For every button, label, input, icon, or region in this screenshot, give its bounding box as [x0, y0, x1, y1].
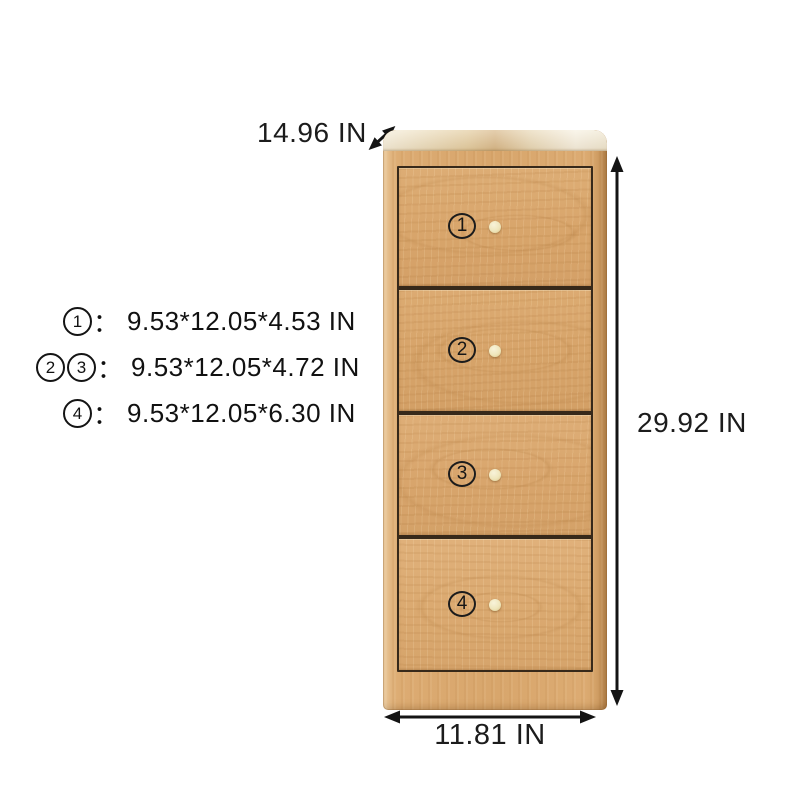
spec-line-drawer-1: 1 ： 9.53*12.05*4.53 IN — [36, 298, 360, 344]
drawer-2-knob — [489, 345, 501, 357]
spec-dimensions-text: 9.53*12.05*6.30 IN — [127, 398, 356, 429]
spec-colon: ： — [97, 349, 123, 386]
drawer-3-knob — [489, 469, 501, 481]
circled-number-2: 2 — [36, 353, 65, 382]
drawer-3-number-badge: 3 — [448, 461, 476, 487]
cabinet-top-surface — [383, 130, 607, 151]
drawer-1: 1 — [399, 168, 591, 286]
circled-number-4: 4 — [63, 399, 92, 428]
spec-colon: ： — [93, 303, 119, 340]
width-dimension-label: 11.81 IN — [383, 719, 597, 752]
drawer-4-knob — [489, 599, 501, 611]
circled-number-3: 3 — [67, 353, 96, 382]
spec-dimensions-text: 9.53*12.05*4.72 IN — [131, 352, 360, 383]
spec-line-drawer-4: 4 ： 9.53*12.05*6.30 IN — [36, 390, 360, 436]
spec-line-drawers-2-3: 2 3 ： 9.53*12.05*4.72 IN — [36, 344, 360, 390]
drawer-1-knob — [489, 221, 501, 233]
drawer-4: 4 — [399, 539, 591, 670]
drawer-4-number-badge: 4 — [448, 591, 476, 617]
drawer-3: 3 — [399, 415, 591, 535]
drawer-stack: 1 2 3 4 — [397, 166, 593, 672]
spec-badges: 2 3 — [36, 353, 96, 382]
height-dimension-label: 29.92 IN — [637, 407, 747, 439]
spec-dimensions-text: 9.53*12.05*4.53 IN — [127, 306, 356, 337]
spec-colon: ： — [93, 395, 119, 432]
spec-badges: 1 — [36, 307, 92, 336]
product-dimension-diagram: 1 ： 9.53*12.05*4.53 IN 2 3 ： 9.53*12.05*… — [0, 0, 800, 800]
spec-badges: 4 — [36, 399, 92, 428]
circled-number-1: 1 — [63, 307, 92, 336]
drawer-2: 2 — [399, 290, 591, 411]
drawer-size-spec-list: 1 ： 9.53*12.05*4.53 IN 2 3 ： 9.53*12.05*… — [36, 298, 360, 436]
height-double-arrow-icon — [606, 155, 628, 707]
drawer-1-number-badge: 1 — [448, 213, 476, 239]
drawer-2-number-badge: 2 — [448, 337, 476, 363]
cabinet: 1 2 3 4 — [383, 130, 607, 710]
depth-dimension-label: 14.96 IN — [257, 117, 367, 149]
